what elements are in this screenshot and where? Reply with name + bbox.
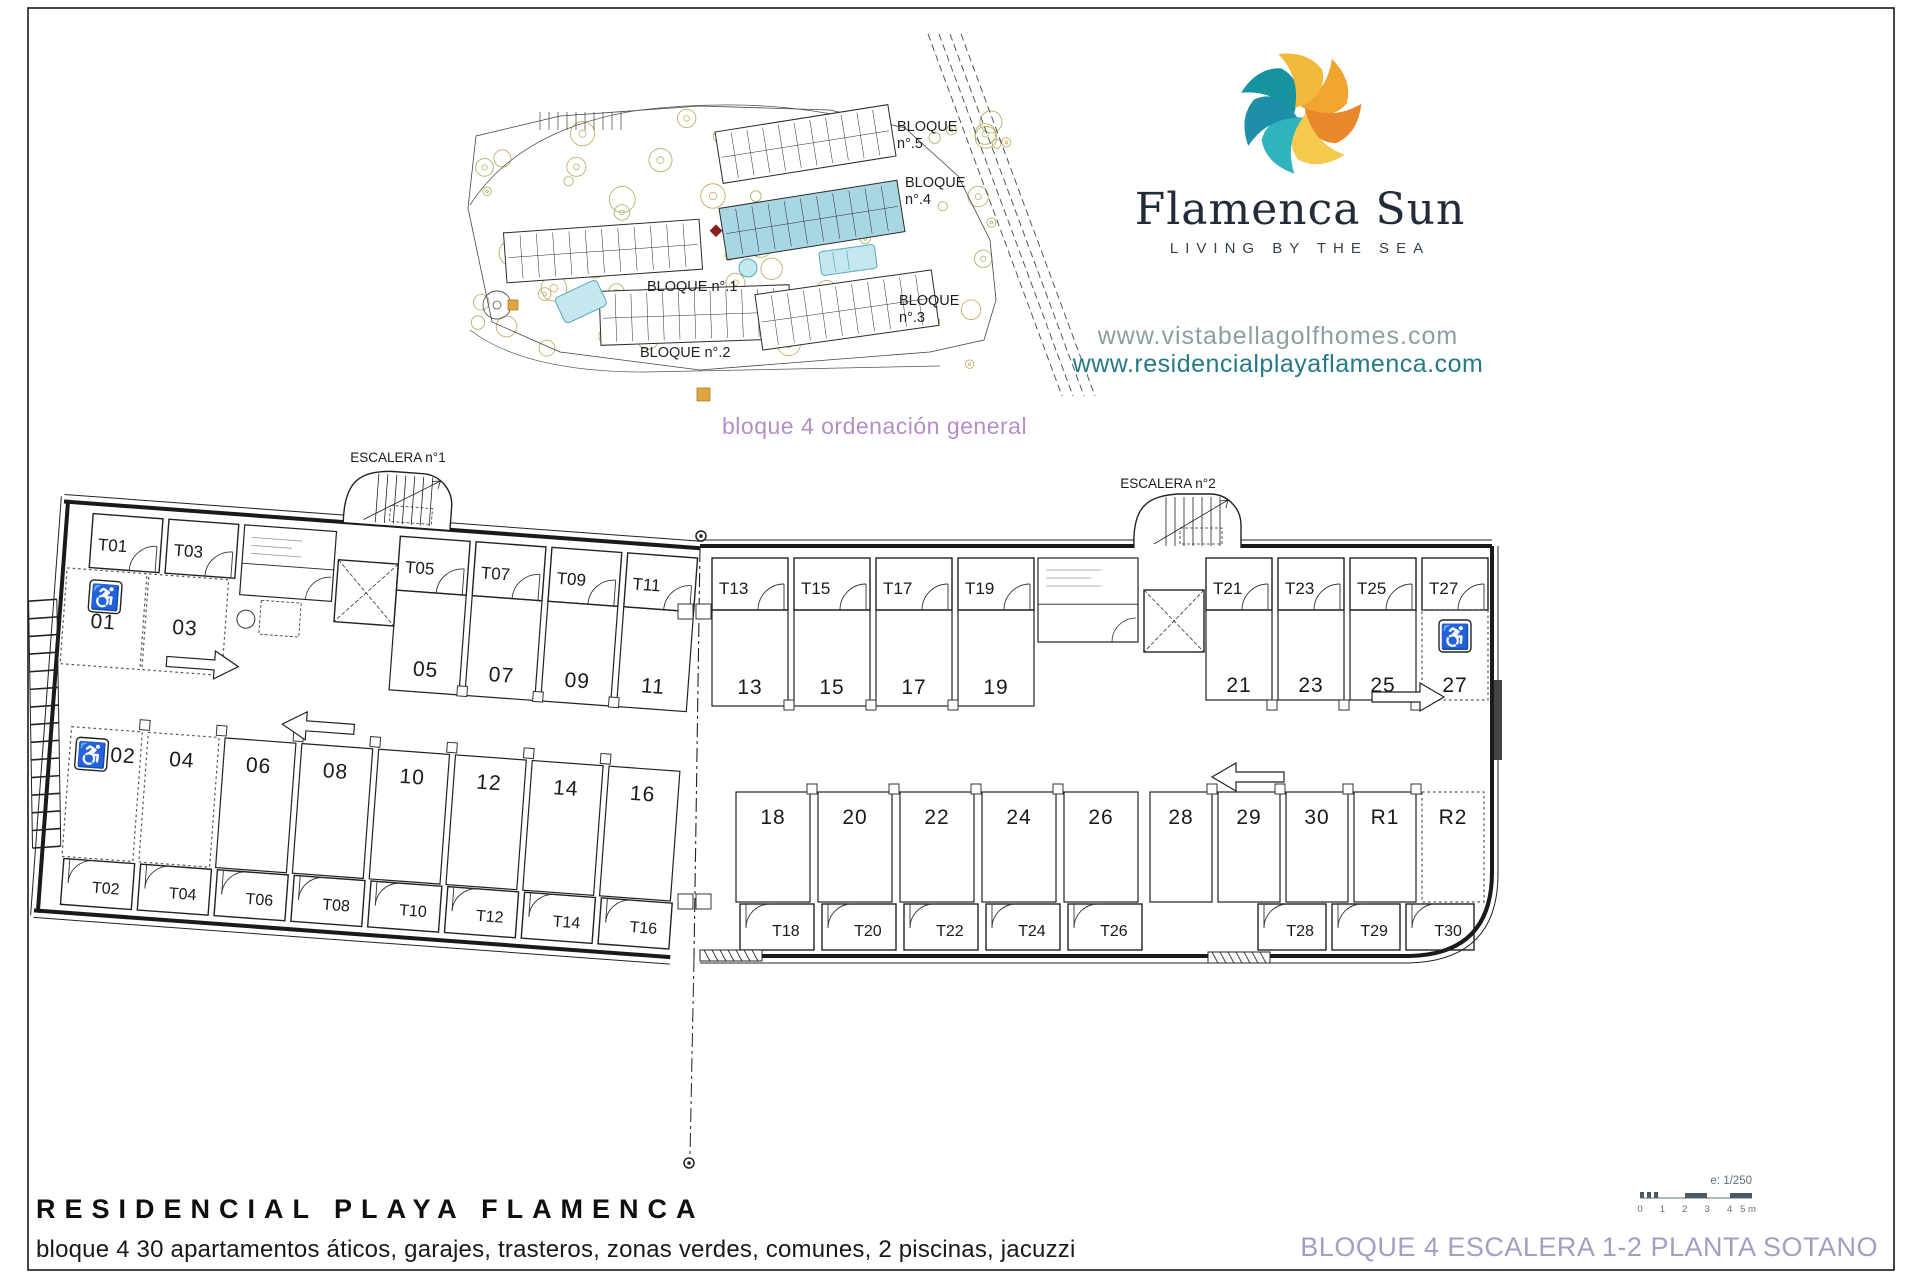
parking-stall-13: 13 (712, 610, 788, 706)
parking-label: 11 (640, 674, 665, 699)
parking-stall-R1: R1 (1354, 792, 1416, 902)
road-line (939, 34, 1073, 396)
parking-label: 17 (901, 676, 926, 699)
building-bloque-1 (503, 219, 702, 283)
parking-stall-20: 20 (818, 792, 892, 902)
marker-diamond (710, 224, 723, 237)
kiosk (508, 300, 518, 310)
kiosk (697, 388, 710, 401)
pool (819, 244, 878, 276)
parking-label: 22 (924, 806, 949, 829)
storage-label: T09 (556, 569, 587, 590)
tree-icon (980, 111, 1002, 133)
parking-label: 29 (1236, 806, 1261, 829)
parking-label: R1 (1371, 806, 1400, 829)
parking-label: R2 (1439, 806, 1468, 829)
storage-label: T15 (801, 579, 830, 598)
drive-arrow-left-icon (166, 647, 240, 680)
tree-icon (750, 191, 761, 202)
storage-label: T24 (1018, 923, 1046, 940)
building-bloque-5 (715, 105, 896, 184)
storage-label: T01 (97, 535, 128, 556)
column-post (889, 784, 899, 794)
storage-stall-T14: T14 (521, 892, 595, 943)
parking-label: 04 (168, 748, 195, 773)
parking-stall-04: 04 (139, 732, 219, 867)
column-post (866, 700, 876, 710)
storage-label: T04 (168, 885, 197, 904)
parking-label: 09 (564, 669, 591, 694)
tree-icon (476, 159, 494, 177)
stair-2 (1134, 494, 1241, 548)
parking-stall-07: 07 (465, 596, 542, 701)
parking-stall-12: 12 (446, 755, 526, 890)
parking-label: 01 (90, 610, 117, 635)
parking-label: 08 (322, 759, 349, 784)
threshold-hatch (700, 950, 762, 961)
parking-stall-27: ♿27 (1422, 610, 1488, 700)
parking-label: 05 (412, 658, 439, 683)
column-post (807, 784, 817, 794)
storage-label: T07 (480, 563, 511, 584)
column-post (523, 748, 534, 759)
storage-label: T21 (1213, 579, 1242, 598)
svg-text:BLOQUE n°.1: BLOQUE n°.1 (647, 279, 737, 295)
expansion-joint (678, 531, 711, 1168)
handicap-icon: ♿ (74, 737, 108, 771)
stair-1 (343, 468, 454, 530)
parking-stall-30: 30 (1286, 792, 1348, 902)
storage-stall-T10: T10 (368, 881, 442, 932)
scale-tick: 3 (1705, 1204, 1710, 1215)
parking-stall-19: 19 (958, 610, 1034, 706)
tree-icon (609, 186, 635, 212)
storage-label: T08 (322, 897, 351, 916)
parking-label: 03 (172, 616, 199, 641)
roundabout (483, 291, 511, 319)
parking-stall-24: 24 (982, 792, 1056, 902)
storage-label: T23 (1285, 579, 1314, 598)
storage-stall-T13: T13 (712, 558, 788, 610)
tree-icon (567, 157, 586, 176)
right-wing: T13T15T17T19T21T23T25T2713151719212325♿2… (700, 494, 1502, 963)
site-label-bloque-2: BLOQUE n°.2 (640, 345, 730, 361)
parking-label: 26 (1088, 806, 1113, 829)
column-post (533, 691, 544, 702)
storage-label: T12 (475, 908, 504, 927)
column-round (236, 610, 255, 629)
tree-icon (975, 250, 992, 267)
parking-label: 19 (983, 676, 1008, 699)
storage-label: T19 (965, 579, 994, 598)
storage-stall-T16: T16 (598, 898, 672, 949)
parking-label: 15 (819, 676, 844, 699)
parking-label: 13 (737, 676, 762, 699)
column-post (1207, 784, 1217, 794)
svg-text:BLOQUE: BLOQUE (899, 293, 960, 309)
storage-stall-T09: T09 (548, 547, 622, 606)
svg-text:n°.5: n°.5 (897, 136, 923, 152)
parking-stall-26: 26 (1064, 792, 1138, 902)
drive-arrow-right-icon (281, 710, 355, 743)
column-post (370, 737, 381, 748)
storage-label: T03 (173, 541, 204, 562)
tree-icon (938, 202, 947, 211)
storage-stall-T27: T27 (1422, 558, 1488, 610)
parking-label: 30 (1304, 806, 1329, 829)
parking-stall-28: 28 (1150, 792, 1212, 902)
storage-label: T26 (1100, 923, 1128, 940)
tree-icon (570, 122, 594, 146)
utility-room (1038, 558, 1138, 642)
parking-stall-23: 23 (1278, 610, 1344, 700)
parking-stall-11: 11 (616, 607, 693, 712)
parking-stall-15: 15 (794, 610, 870, 706)
storage-stall-T02: T02 (60, 858, 134, 909)
ramp (11, 597, 79, 850)
storage-stall-T21: T21 (1206, 558, 1272, 610)
tree-icon (961, 300, 981, 320)
storage-stall-T01: T01 (89, 514, 163, 573)
column-post (1411, 784, 1421, 794)
wall-hatch (1494, 680, 1502, 760)
parking-label: 16 (629, 782, 656, 807)
tree-icon (471, 316, 484, 329)
footer-subtitle: bloque 4 30 apartamentos áticos, garajes… (36, 1236, 1076, 1264)
tree-icon (564, 177, 573, 186)
scale-bar: e: 1/250012345 m (1637, 1175, 1756, 1215)
storage-stall-T12: T12 (444, 887, 518, 938)
svg-text:BLOQUE: BLOQUE (897, 119, 958, 135)
storage-stall-T08: T08 (291, 875, 365, 926)
tree-icon (494, 150, 511, 167)
parking-label: 06 (245, 754, 272, 779)
column-post (1339, 700, 1349, 710)
brand-name: Flamenca Sun (1100, 184, 1500, 235)
parking-stall-06: 06 (216, 738, 296, 873)
storage-label: T30 (1434, 923, 1462, 940)
scale-tick: 1 (1660, 1204, 1665, 1215)
storage-stall-T22: T22 (904, 904, 978, 950)
svg-text:♿: ♿ (76, 740, 108, 770)
storage-stall-T17: T17 (876, 558, 952, 610)
tree-icon (538, 288, 551, 301)
scale-tick: 5 m (1740, 1204, 1756, 1215)
parking-stall-10: 10 (369, 749, 449, 884)
column-post (784, 700, 794, 710)
storage-stall-T04: T04 (137, 864, 211, 915)
storage-label: T10 (399, 902, 428, 921)
svg-text:♿: ♿ (89, 583, 121, 613)
site-label-bloque-4: BLOQUEn°.4 (905, 175, 966, 208)
parking-stall-16: 16 (600, 766, 680, 901)
elevator-shaft (1144, 590, 1204, 652)
tree-icon (649, 149, 672, 172)
elevator-shaft (334, 560, 398, 626)
parking-stall-02: ♿02 (62, 727, 142, 862)
storage-label: T14 (552, 913, 581, 932)
parking-label: 10 (399, 765, 426, 790)
page-border (28, 8, 1894, 1270)
utility-room (240, 525, 337, 602)
tree-icon (701, 184, 725, 208)
meter-box (259, 600, 301, 637)
parking-label: 18 (760, 806, 785, 829)
parking-stall-01: ♿01 (60, 568, 147, 670)
svg-text:BLOQUE: BLOQUE (905, 175, 966, 191)
storage-stall-T23: T23 (1278, 558, 1344, 610)
site-label-bloque-5: BLOQUEn°.5 (897, 119, 958, 152)
floor-plan: T13T15T17T19T21T23T25T2713151719212325♿2… (6, 446, 1502, 1168)
parking-label: 14 (552, 776, 579, 801)
parking-stall-17: 17 (876, 610, 952, 706)
parking-stall-14: 14 (523, 760, 603, 895)
storage-label: T22 (936, 923, 964, 940)
scale-tick: 4 (1727, 1204, 1732, 1215)
tree-icon (677, 109, 695, 127)
svg-text:n°.3: n°.3 (899, 310, 925, 326)
storage-label: T02 (91, 880, 120, 899)
parking-label: 27 (1442, 674, 1467, 697)
svg-text:n°.4: n°.4 (905, 192, 931, 208)
column-post (971, 784, 981, 794)
plan-sheet: BLOQUEn°.5BLOQUEn°.4BLOQUE n°.1BLOQUE n°… (0, 0, 1920, 1280)
storage-stall-T25: T25 (1350, 558, 1416, 610)
parking-stall-R2: R2 (1422, 792, 1484, 902)
parking-stall-21: 21 (1206, 610, 1272, 700)
tree-icon (761, 258, 782, 279)
stair1-label: ESCALERA n°1 (350, 450, 445, 465)
column-post (608, 697, 619, 708)
storage-stall-T15: T15 (794, 558, 870, 610)
tree-icon (483, 187, 491, 195)
tree-icon (987, 218, 996, 227)
storage-label: T25 (1357, 579, 1386, 598)
storage-stall-T18: T18 (740, 904, 814, 950)
storage-label: T20 (854, 923, 882, 940)
storage-stall-T07: T07 (472, 542, 546, 601)
parking-stall-09: 09 (541, 601, 618, 706)
column-post (1267, 700, 1277, 710)
building-bloque-4-highlighted (719, 180, 905, 260)
storage-stall-T11: T11 (624, 553, 698, 612)
column-post (447, 742, 458, 753)
svg-text:BLOQUE n°.2: BLOQUE n°.2 (640, 345, 730, 361)
url-residencialplayaflamenca[interactable]: www.residencialplayaflamenca.com (1058, 350, 1498, 379)
brand-tagline: LIVING BY THE SEA (1100, 240, 1500, 257)
parking-stall-25: 25 (1350, 610, 1416, 700)
url-vistabellagolfhomes[interactable]: www.vistabellagolfhomes.com (1058, 322, 1498, 351)
parking-label: 23 (1298, 674, 1323, 697)
column-post (216, 725, 227, 736)
parking-label: 24 (1006, 806, 1031, 829)
storage-label: T05 (404, 558, 435, 579)
storage-stall-T20: T20 (822, 904, 896, 950)
storage-label: T16 (629, 919, 658, 938)
parking-label: 02 (110, 744, 137, 769)
column-post (139, 720, 150, 731)
architectural-drawing: BLOQUEn°.5BLOQUEn°.4BLOQUE n°.1BLOQUE n°… (0, 0, 1920, 1280)
drive-arrow-right-icon (1212, 763, 1284, 791)
storage-label: T06 (245, 891, 274, 910)
column-post (948, 700, 958, 710)
parking-label: 28 (1168, 806, 1193, 829)
column-post (600, 754, 611, 765)
storage-label: T11 (632, 574, 661, 595)
handicap-icon: ♿ (88, 580, 122, 614)
parking-label: 12 (476, 770, 503, 795)
handicap-icon: ♿ (1439, 620, 1471, 652)
parking-label: 07 (488, 663, 515, 688)
road-line (928, 34, 1062, 396)
parking-stall-29: 29 (1218, 792, 1280, 902)
storage-stall-T29: T29 (1332, 904, 1400, 950)
storage-stall-T03: T03 (165, 519, 239, 578)
svg-text:♿: ♿ (1440, 623, 1470, 651)
parking-stall-05: 05 (389, 590, 466, 695)
storage-stall-T19: T19 (958, 558, 1034, 610)
parking-label: 21 (1226, 674, 1251, 697)
site-plan: BLOQUEn°.5BLOQUEn°.4BLOQUE n°.1BLOQUE n°… (468, 34, 1095, 401)
site-plan-caption: bloque 4 ordenación general (722, 413, 1027, 440)
threshold-hatch (1208, 952, 1270, 963)
sheet-title: BLOQUE 4 ESCALERA 1-2 PLANTA SOTANO (1300, 1232, 1878, 1263)
parking-stall-08: 08 (292, 744, 372, 879)
tree-icon (965, 360, 974, 369)
storage-stall-T26: T26 (1068, 904, 1142, 950)
storage-label: T13 (719, 579, 748, 598)
storage-label: T17 (883, 579, 912, 598)
scale-tick: 0 (1637, 1204, 1642, 1215)
storage-stall-T28: T28 (1258, 904, 1326, 950)
left-wing: T01T03T05T07T09T11♿010305070911♿02040608… (6, 446, 705, 965)
parking-stall-22: 22 (900, 792, 974, 902)
column-post (1275, 784, 1285, 794)
parking-stall-18: 18 (736, 792, 810, 902)
scale-tick: 2 (1682, 1204, 1687, 1215)
pool-round (739, 259, 757, 277)
column-post (457, 686, 468, 697)
column-post (1053, 784, 1063, 794)
storage-stall-T06: T06 (214, 870, 288, 921)
flamenca-sun-logo-icon (1228, 44, 1372, 180)
footer-title: RESIDENCIAL PLAYA FLAMENCA (36, 1194, 705, 1225)
tree-icon (539, 340, 555, 356)
stair2-label: ESCALERA n°2 (1120, 476, 1215, 491)
storage-stall-T24: T24 (986, 904, 1060, 950)
storage-label: T29 (1360, 923, 1388, 940)
scale-label: e: 1/250 (1710, 1175, 1752, 1187)
storage-stall-T05: T05 (396, 536, 470, 595)
storage-label: T27 (1429, 579, 1458, 598)
parking-label: 20 (842, 806, 867, 829)
site-label-bloque-1: BLOQUE n°.1 (647, 279, 737, 295)
storage-label: T28 (1286, 923, 1314, 940)
storage-label: T18 (772, 923, 800, 940)
tree-icon (1002, 138, 1011, 147)
column-post (1343, 784, 1353, 794)
